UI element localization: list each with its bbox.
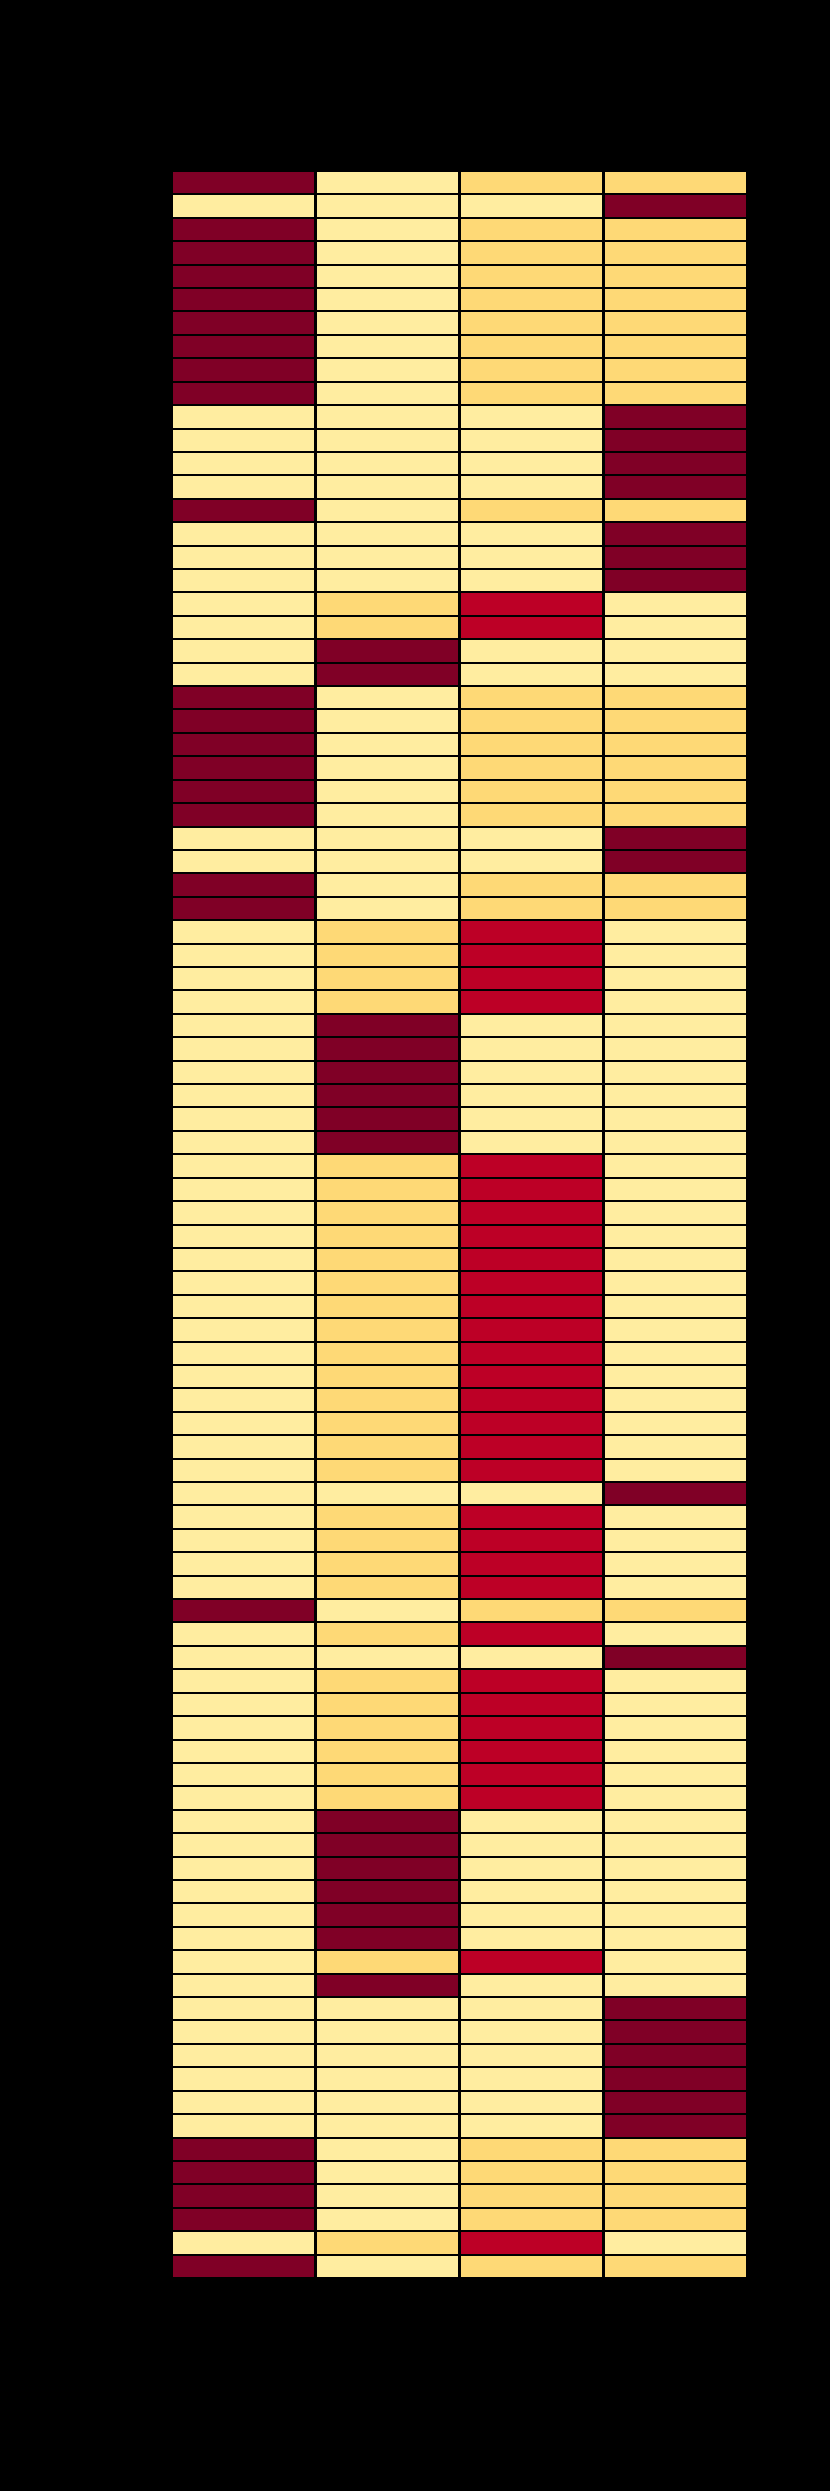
heatmap-cell [604,2138,747,2161]
heatmap-cell [460,1435,603,1458]
heatmap-cell [172,780,315,803]
heatmap-cell [316,1388,459,1411]
heatmap-cell [316,546,459,569]
heatmap-cell [172,1201,315,1224]
heatmap-cell [172,1529,315,1552]
heatmap-cell [604,1061,747,1084]
heatmap-cell [604,1833,747,1856]
heatmap-cell [460,663,603,686]
heatmap-cell [172,733,315,756]
heatmap-cell [604,639,747,662]
heatmap-cell [172,1505,315,1528]
heatmap-cell [460,803,603,826]
heatmap-cell [316,1459,459,1482]
heatmap-cell [172,592,315,615]
heatmap-cell [604,967,747,990]
heatmap-cell [604,194,747,217]
heatmap-cell [460,1482,603,1505]
heatmap-cell [460,288,603,311]
heatmap-cell [316,686,459,709]
heatmap-cell [316,1131,459,1154]
heatmap-cell [604,2067,747,2090]
heatmap-cell [316,1950,459,1973]
heatmap-cell [604,1529,747,1552]
heatmap-cell [316,1061,459,1084]
heatmap-cell [172,756,315,779]
heatmap-cell [460,2255,603,2278]
heatmap-cell [460,218,603,241]
heatmap-cell [604,1365,747,1388]
heatmap-cell [316,2231,459,2254]
heatmap-cell [316,1201,459,1224]
heatmap-cell [316,522,459,545]
heatmap-cell [172,1786,315,1809]
heatmap-cell [460,1061,603,1084]
heatmap-cell [604,1810,747,1833]
heatmap-cell [172,1295,315,1318]
heatmap-cell [604,2208,747,2231]
heatmap-cell [604,241,747,264]
heatmap-cell [316,756,459,779]
heatmap-cell [604,171,747,194]
heatmap-cell [316,2020,459,2043]
heatmap-cell [460,2161,603,2184]
heatmap-cell [460,405,603,428]
heatmap-cell [316,944,459,967]
heatmap-cell [604,429,747,452]
heatmap-cell [604,756,747,779]
heatmap-cell [604,1178,747,1201]
heatmap-cell [316,1857,459,1880]
heatmap-cell [172,897,315,920]
heatmap-cell [460,1622,603,1645]
heatmap-cell [460,265,603,288]
heatmap-cell [316,639,459,662]
heatmap-cell [460,475,603,498]
heatmap-cell [316,1037,459,1060]
heatmap-cell [316,920,459,943]
heatmap-cell [316,1154,459,1177]
figure-canvas [0,0,830,2491]
heatmap-cell [172,288,315,311]
heatmap-cell [316,1014,459,1037]
heatmap-cell [316,733,459,756]
heatmap-cell [316,709,459,732]
heatmap-cell [604,1950,747,1973]
heatmap-cell [316,1622,459,1645]
heatmap-cell [604,1131,747,1154]
heatmap-cell [316,1107,459,1130]
heatmap-cell [460,1552,603,1575]
heatmap-cell [604,1412,747,1435]
heatmap-cell [316,1365,459,1388]
heatmap-cell [172,2114,315,2137]
heatmap-cell [316,2138,459,2161]
heatmap-cell [460,1248,603,1271]
heatmap-cell [460,850,603,873]
heatmap-cell [460,2138,603,2161]
heatmap-cell [460,2208,603,2231]
heatmap-cell [172,1435,315,1458]
heatmap-cell [172,2208,315,2231]
heatmap-cell [316,1599,459,1622]
heatmap-cell [604,265,747,288]
heatmap-cell [172,1903,315,1926]
heatmap-cell [604,1318,747,1341]
heatmap-cell [316,616,459,639]
heatmap-cell [460,897,603,920]
heatmap-cell [172,382,315,405]
heatmap-cell [460,171,603,194]
heatmap-cell [316,1997,459,2020]
heatmap-cell [172,335,315,358]
heatmap-cell [460,1857,603,1880]
heatmap-cell [316,897,459,920]
heatmap-cell [604,1740,747,1763]
heatmap-cell [460,1412,603,1435]
heatmap-cell [316,2255,459,2278]
heatmap-cell [172,1178,315,1201]
heatmap-cell [316,1342,459,1365]
heatmap-cell [604,2184,747,2207]
heatmap-cell [604,311,747,334]
heatmap-cell [604,733,747,756]
heatmap-cell [316,2044,459,2067]
heatmap-cell [172,1154,315,1177]
heatmap-cell [604,1037,747,1060]
heatmap-cell [604,990,747,1013]
heatmap-cell [604,1154,747,1177]
heatmap-cell [172,2161,315,2184]
heatmap-cell [604,358,747,381]
heatmap-cell [460,1342,603,1365]
heatmap-cell [172,1950,315,1973]
heatmap-cell [460,1669,603,1692]
heatmap-cell [604,1201,747,1224]
heatmap-cell [604,1880,747,1903]
heatmap-cell [172,358,315,381]
heatmap-cell [604,1693,747,1716]
heatmap-cell [316,241,459,264]
heatmap-cell [316,1669,459,1692]
heatmap-cell [604,1459,747,1482]
heatmap-cell [172,2184,315,2207]
heatmap-cell [604,452,747,475]
heatmap-cell [172,1997,315,2020]
heatmap-cell [460,2020,603,2043]
heatmap-cell [604,1435,747,1458]
heatmap-cell [460,709,603,732]
heatmap-cell [172,2067,315,2090]
heatmap-cell [316,1248,459,1271]
heatmap-cell [460,1295,603,1318]
heatmap-cell [460,1927,603,1950]
heatmap-cell [604,2114,747,2137]
heatmap-cell [604,2255,747,2278]
heatmap-cell [172,429,315,452]
heatmap-cell [460,1599,603,1622]
heatmap-cell [316,780,459,803]
heatmap-cell [172,2020,315,2043]
heatmap-cell [460,522,603,545]
heatmap-cell [316,592,459,615]
heatmap-cell [604,522,747,545]
heatmap-cell [172,1061,315,1084]
heatmap-cell [316,405,459,428]
heatmap-cell [460,1107,603,1130]
heatmap-cell [172,1927,315,1950]
heatmap-cell [460,944,603,967]
heatmap-cell [604,2231,747,2254]
heatmap-cell [316,1482,459,1505]
heatmap-cell [460,2231,603,2254]
heatmap-cell [172,827,315,850]
heatmap-cell [460,1903,603,1926]
heatmap-cell [460,1576,603,1599]
heatmap-cell [604,569,747,592]
heatmap-cell [316,382,459,405]
heatmap-cell [172,499,315,522]
heatmap-cell [460,358,603,381]
heatmap-cell [604,1271,747,1294]
heatmap-cell [316,873,459,896]
heatmap-cell [460,311,603,334]
heatmap-cell [316,1576,459,1599]
heatmap-cell [172,1412,315,1435]
heatmap-cell [460,1529,603,1552]
heatmap-cell [316,803,459,826]
heatmap-cell [460,1131,603,1154]
heatmap-cell [460,1997,603,2020]
heatmap-cell [460,1318,603,1341]
heatmap-cell [460,733,603,756]
heatmap-cell [604,780,747,803]
heatmap-cell [604,1482,747,1505]
heatmap-cell [172,920,315,943]
heatmap-cell [172,405,315,428]
heatmap-cell [460,1178,603,1201]
heatmap-cell [172,873,315,896]
heatmap-cell [460,1365,603,1388]
heatmap-cell [172,639,315,662]
heatmap-cell [316,1225,459,1248]
heatmap-cell [460,2044,603,2067]
heatmap-cell [604,1927,747,1950]
heatmap-cell [604,803,747,826]
heatmap-cell [460,1225,603,1248]
heatmap-cell [172,1740,315,1763]
heatmap-cell [316,1740,459,1763]
heatmap-cell [604,1669,747,1692]
heatmap-cell [172,1880,315,1903]
heatmap-cell [604,827,747,850]
heatmap-cell [172,2255,315,2278]
heatmap-cell [172,1833,315,1856]
heatmap-cell [316,1810,459,1833]
heatmap-cell [604,1225,747,1248]
heatmap-cell [604,1763,747,1786]
heatmap-cell [604,335,747,358]
heatmap-cell [172,241,315,264]
heatmap-cell [460,1271,603,1294]
heatmap-cell [460,499,603,522]
heatmap-cell [172,1342,315,1365]
heatmap-cell [172,1459,315,1482]
heatmap-cell [172,686,315,709]
heatmap-cell [316,2161,459,2184]
heatmap-cell [604,1388,747,1411]
heatmap-cell [316,1552,459,1575]
heatmap-cell [316,171,459,194]
heatmap-cell [172,990,315,1013]
heatmap-cell [604,1599,747,1622]
heatmap-cell [316,265,459,288]
heatmap-cell [172,2138,315,2161]
heatmap-cell [460,2091,603,2114]
heatmap-cell [316,827,459,850]
heatmap-cell [460,1505,603,1528]
heatmap-cell [460,827,603,850]
heatmap-cell [604,2044,747,2067]
heatmap-cell [172,1365,315,1388]
heatmap-cell [172,265,315,288]
heatmap-cell [172,1248,315,1271]
heatmap-cell [460,1716,603,1739]
heatmap-cell [172,616,315,639]
heatmap-cell [316,1903,459,1926]
heatmap-cell [604,1576,747,1599]
heatmap-cell [316,2208,459,2231]
heatmap-cell [316,1529,459,1552]
heatmap-cell [316,1763,459,1786]
heatmap-cell [172,663,315,686]
heatmap-cell [460,429,603,452]
heatmap-cell [172,1131,315,1154]
heatmap-cell [460,1154,603,1177]
heatmap-cell [172,1716,315,1739]
heatmap-cell [460,639,603,662]
heatmap-cell [316,1880,459,1903]
heatmap-cell [460,592,603,615]
heatmap-cell [604,1857,747,1880]
heatmap-cell [172,171,315,194]
heatmap-cell [172,1599,315,1622]
heatmap-cell [316,1318,459,1341]
heatmap-cell [604,709,747,732]
heatmap-cell [316,1271,459,1294]
heatmap-cell [604,546,747,569]
heatmap-cell [316,1646,459,1669]
heatmap-cell [460,194,603,217]
heatmap-cell [316,452,459,475]
heatmap-cell [604,2020,747,2043]
heatmap-cell [172,1576,315,1599]
heatmap-cell [460,1740,603,1763]
heatmap-cell [460,546,603,569]
heatmap-cell [172,1037,315,1060]
heatmap-cell [460,452,603,475]
heatmap-cell [172,218,315,241]
heatmap-cell [460,569,603,592]
heatmap-cell [460,1974,603,1997]
heatmap-cell [460,241,603,264]
heatmap-cell [316,967,459,990]
heatmap-cell [316,499,459,522]
heatmap-cell [172,850,315,873]
heatmap-cell [604,499,747,522]
heatmap-cell [604,1084,747,1107]
heatmap-cell [604,1974,747,1997]
heatmap-cell [604,1248,747,1271]
heatmap-cell [316,288,459,311]
heatmap-cell [316,1974,459,1997]
heatmap-cell [316,1412,459,1435]
heatmap-cell [604,288,747,311]
heatmap-cell [316,2184,459,2207]
heatmap-cell [460,2067,603,2090]
heatmap-cell [172,2231,315,2254]
heatmap-cell [604,1342,747,1365]
heatmap-cell [460,686,603,709]
heatmap-cell [604,1107,747,1130]
heatmap-cell [172,1318,315,1341]
heatmap-cell [172,1271,315,1294]
heatmap-cell [316,1505,459,1528]
heatmap-cell [460,1950,603,1973]
heatmap-cell [316,990,459,1013]
heatmap-cell [460,1810,603,1833]
heatmap-cell [172,803,315,826]
heatmap-cell [460,873,603,896]
heatmap-cell [604,873,747,896]
heatmap-cell [604,1786,747,1809]
heatmap-cell [316,475,459,498]
heatmap-cell [604,920,747,943]
heatmap-cell [172,1974,315,1997]
heatmap-cell [460,967,603,990]
heatmap-cell [172,522,315,545]
heatmap-cell [316,194,459,217]
heatmap-cell [604,592,747,615]
heatmap-cell [460,2184,603,2207]
heatmap-cell [604,616,747,639]
heatmap-cell [172,1084,315,1107]
heatmap-cell [316,569,459,592]
heatmap-cell [316,1786,459,1809]
heatmap-cell [316,1716,459,1739]
heatmap-grid [172,171,747,2278]
heatmap-cell [604,850,747,873]
heatmap-cell [316,1693,459,1716]
heatmap-cell [460,1014,603,1037]
heatmap-cell [460,920,603,943]
heatmap-cell [172,1857,315,1880]
heatmap-cell [172,944,315,967]
heatmap-cell [604,1716,747,1739]
heatmap-cell [316,1833,459,1856]
heatmap-cell [316,2114,459,2137]
heatmap-cell [172,1107,315,1130]
heatmap-cell [316,1927,459,1950]
heatmap-cell [460,1646,603,1669]
heatmap-cell [172,967,315,990]
heatmap-cell [460,2114,603,2137]
heatmap-cell [316,335,459,358]
heatmap-cell [316,1178,459,1201]
heatmap-cell [604,1014,747,1037]
heatmap-cell [604,1646,747,1669]
heatmap-cell [460,1084,603,1107]
